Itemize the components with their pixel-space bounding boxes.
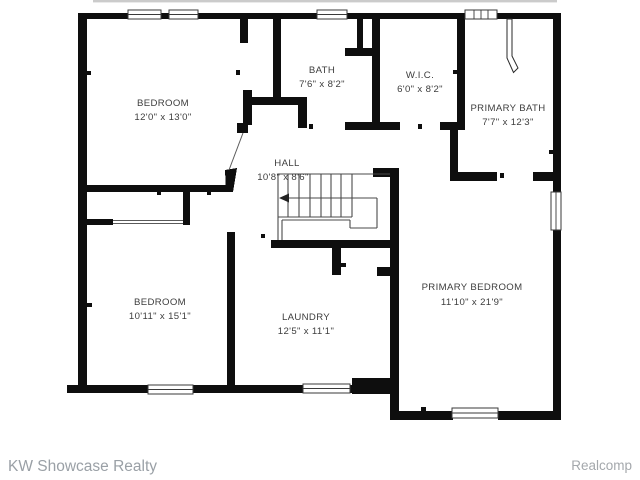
room-label-bedroom-1: BEDROOM 12'0" x 13'0" (134, 98, 191, 123)
room-name: LAUNDRY (282, 312, 330, 323)
stairs (278, 174, 390, 240)
provider-watermark: Realcomp (571, 458, 632, 473)
door-leaf (507, 19, 518, 73)
room-label-hall: HALL 10'8" x 8'6" (257, 158, 308, 183)
door-swing (229, 133, 243, 170)
stair-direction-arrow (279, 194, 289, 203)
room-dims: 12'5" x 11'1" (278, 326, 334, 337)
room-dims: 10'11" x 15'1" (129, 311, 191, 322)
room-label-bath: BATH 7'6" x 8'2" (299, 65, 345, 90)
room-dims: 6'0" x 8'2" (397, 84, 443, 95)
room-label-primary-bedroom: PRIMARY BEDROOM 11'10" x 21'9" (422, 282, 523, 308)
room-name: W.I.C. (406, 70, 434, 81)
floor-plan-drawing: BEDROOM 12'0" x 13'0" BATH 7'6" x 8'2" W… (0, 0, 640, 480)
room-dims: 7'6" x 8'2" (299, 79, 345, 90)
footer: KW Showcase Realty Realcomp (8, 458, 632, 475)
room-name: PRIMARY BATH (470, 103, 545, 114)
room-label-wic: W.I.C. 6'0" x 8'2" (397, 70, 443, 95)
brokerage-watermark: KW Showcase Realty (8, 458, 157, 475)
room-dims: 10'8" x 8'6" (257, 172, 308, 183)
room-label-bedroom-2: BEDROOM 10'11" x 15'1" (129, 297, 191, 322)
room-name: HALL (274, 158, 300, 169)
room-dims: 11'10" x 21'9" (441, 297, 503, 308)
windows (128, 10, 561, 418)
room-dims: 7'7" x 12'3" (482, 117, 533, 128)
room-name: BEDROOM (134, 297, 186, 308)
room-dims: 12'0" x 13'0" (134, 112, 191, 123)
room-name: BATH (309, 65, 335, 76)
floor-plan-page: BEDROOM 12'0" x 13'0" BATH 7'6" x 8'2" W… (0, 0, 640, 480)
room-label-primary-bath: PRIMARY BATH 7'7" x 12'3" (470, 103, 545, 128)
room-name: BEDROOM (137, 98, 189, 109)
room-label-laundry: LAUNDRY 12'5" x 11'1" (278, 312, 334, 337)
roofline (93, 0, 557, 2)
room-name: PRIMARY BEDROOM (422, 282, 523, 293)
room-labels: BEDROOM 12'0" x 13'0" BATH 7'6" x 8'2" W… (129, 65, 546, 337)
